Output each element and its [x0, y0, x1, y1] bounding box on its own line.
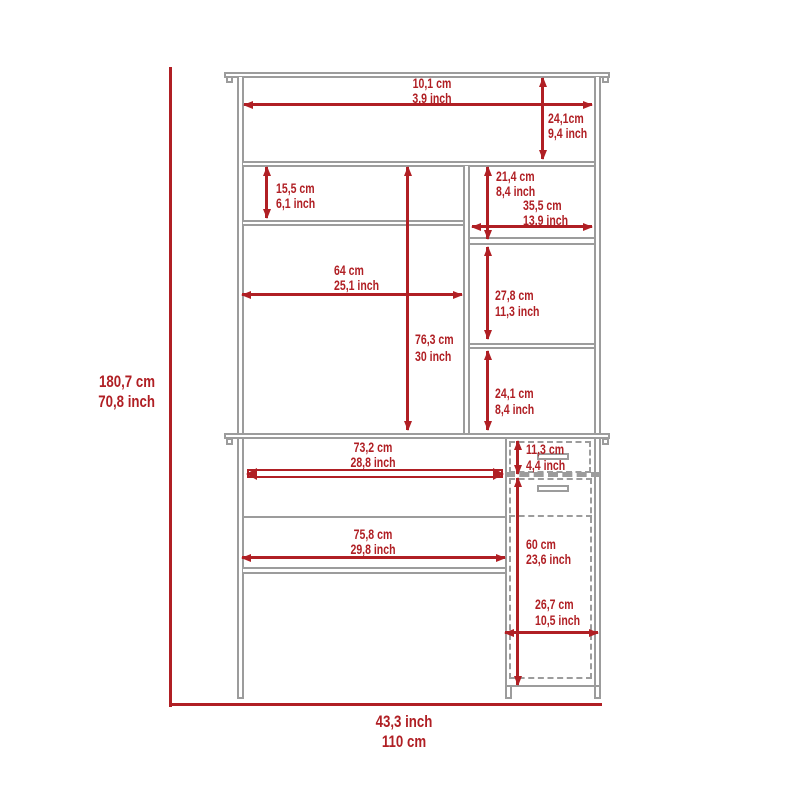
overall-height-scale-line [169, 67, 172, 707]
desk-back-rail [243, 516, 506, 518]
label-hutch-left-shelf: 15,5 cm 6,1 inch [276, 181, 315, 211]
desk-surface [224, 433, 610, 439]
label-top-height: 24,1cm 9,4 inch [548, 111, 587, 141]
arrow-hutch-right-top-height [486, 167, 489, 239]
hidden-rail-dashed [509, 515, 592, 517]
label-hutch-left-width: 64 cm 25,1 inch [334, 263, 379, 293]
label-hutch-right-width: 35,5 cm 13,9 inch [523, 198, 568, 228]
top-board-right-lip [602, 76, 609, 83]
hutch-left-shelf [243, 220, 463, 226]
right-side-panel [594, 77, 601, 699]
desk-surface-left-lip [226, 438, 233, 445]
arrow-hutch-left-shelf-height [265, 167, 268, 218]
arrow-cabinet-width [505, 631, 598, 634]
arrow-hutch-left-height [406, 167, 409, 430]
hutch-top-divider-shelf [243, 161, 594, 167]
door-handle [537, 485, 569, 492]
furniture-dimension-diagram: 10,1 cm 3,9 inch 24,1cm 9,4 inch 15,5 cm… [0, 0, 800, 800]
label-hutch-right-bottom: 24,1 cm 8,4 inch [495, 386, 534, 418]
arrow-drawer-height [516, 441, 519, 474]
arrow-tray-width [247, 469, 503, 478]
label-overall-width: 43,3 inch 110 cm [376, 712, 433, 752]
door-front-dashed [509, 478, 592, 679]
arrow-hutch-left-width [242, 293, 462, 296]
label-hutch-right-mid: 27,8 cm 11,3 inch [495, 288, 539, 320]
overall-width-scale-line [169, 703, 602, 706]
arrow-hutch-right-bottom-height [486, 351, 489, 430]
arrow-hutch-right-mid-height [486, 247, 489, 339]
desk-lower-shelf [243, 567, 505, 574]
top-board-left-lip [226, 76, 233, 83]
label-hutch-right-top: 21,4 cm 8,4 inch [496, 169, 535, 199]
left-side-panel [237, 77, 244, 699]
label-cabinet-width: 26,7 cm 10,5 inch [535, 597, 580, 629]
desk-surface-right-lip [602, 438, 609, 445]
hutch-center-divider [463, 166, 470, 433]
hutch-right-shelf-2 [470, 343, 594, 349]
label-hutch-left-height: 76,3 cm 30 inch [415, 331, 454, 365]
drawer-cabinet-left-leg [505, 687, 512, 699]
label-tray-width: 73,2 cm 28,8 inch [350, 440, 395, 470]
label-door-height: 60 cm 23,6 inch [526, 537, 571, 567]
label-desk-width: 75,8 cm 29,8 inch [350, 527, 395, 557]
label-top-width: 10,1 cm 3,9 inch [412, 76, 451, 106]
arrow-top-height [541, 78, 544, 159]
label-overall-height: 180,7 cm 70,8 inch [61, 372, 155, 412]
label-drawer-height: 11,3 cm 4,4 inch [526, 442, 565, 474]
arrow-door-height [516, 478, 519, 685]
